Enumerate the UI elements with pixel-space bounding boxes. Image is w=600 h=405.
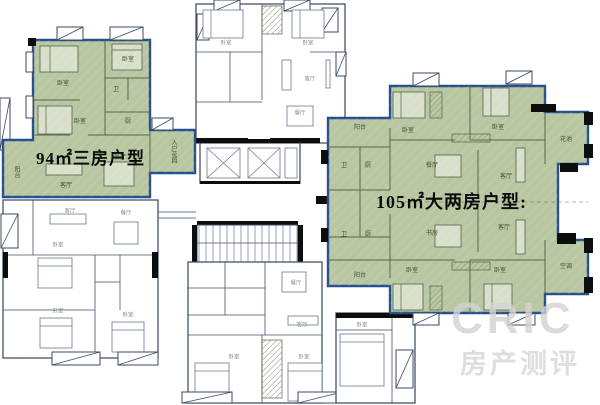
unit-94-area-label: 94㎡三房户型 <box>36 144 145 169</box>
unit-bottom-center <box>182 262 342 403</box>
unit-top-center <box>196 0 346 143</box>
unit-bottom-right <box>336 313 415 403</box>
floorplan-sheet: CRIC 房产测评 卧室卧室卧室卫厨客厅餐厅阳台入户花园阳台卧室卧室卫厨餐厅客厅… <box>0 0 600 405</box>
staircase <box>192 221 303 262</box>
watermark-subtitle: 房产测评 <box>460 342 580 381</box>
watermark-cric: CRIC <box>451 294 575 344</box>
unit-105-area-label: 105㎡大两房户型: <box>376 188 527 214</box>
unit-94-highlight <box>3 27 195 197</box>
